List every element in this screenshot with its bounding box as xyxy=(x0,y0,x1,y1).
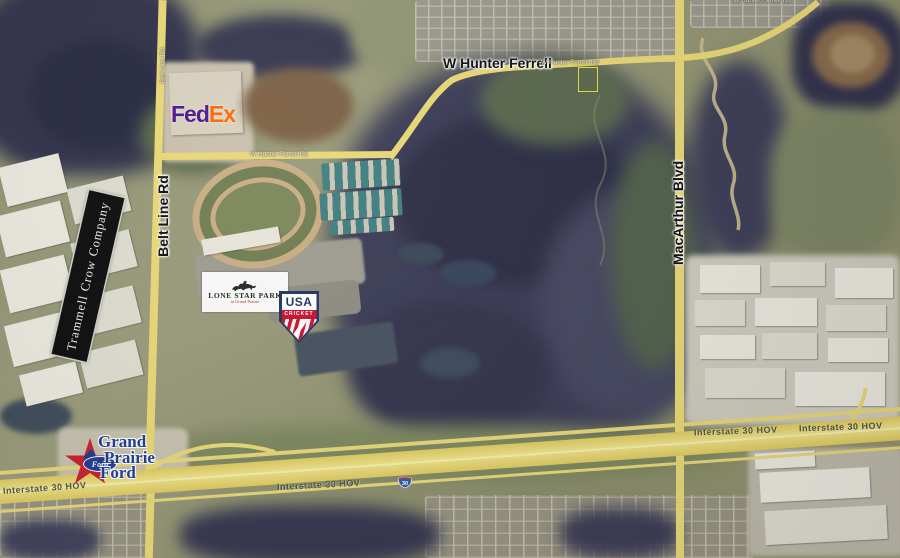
road-label-hunter-ferrell-small: W Hunter Ferrell Rd xyxy=(541,59,599,66)
hunter-ferrell-road-curve xyxy=(390,2,818,158)
road-label-hunter-ferrell-small: W Hunter Ferrell Rd xyxy=(733,0,791,4)
interstate-30-shield-icon: 30 xyxy=(397,474,413,489)
road-label-belt-line: Belt Line Rd xyxy=(155,171,171,261)
usa-cricket-usa-text: USA xyxy=(282,294,317,310)
usa-cricket-cricket-text: CRICKET xyxy=(282,310,317,319)
fedex-logo: FedEx xyxy=(171,101,235,128)
road-label-belt-line-small: Belt Line Rd xyxy=(160,43,167,89)
creek xyxy=(594,95,606,265)
ford-word-ford: Ford xyxy=(100,465,155,481)
lone-star-park-logo: LONE STAR PARK at Grand Prairie xyxy=(202,272,288,312)
fedex-logo-ex: Ex xyxy=(209,101,235,127)
road-label-hunter-ferrell-small: W Hunter Ferrell Rd xyxy=(250,151,308,158)
fedex-logo-fed: Fed xyxy=(171,101,209,127)
road-label-hunter-ferrell: W Hunter Ferrell xyxy=(443,55,552,71)
grand-prairie-ford-wordmark: Grand Prairie Ford xyxy=(98,434,155,481)
lone-star-park-title: LONE STAR PARK xyxy=(208,292,282,300)
river-meander xyxy=(701,38,738,230)
road-label-macarthur: MacArthur Blvd xyxy=(670,161,686,265)
lone-star-park-tagline: at Grand Prairie xyxy=(231,299,260,305)
highlighted-parcel-outline xyxy=(578,67,598,92)
satellite-map-canvas: W Hunter Ferrell W Hunter Ferrell Rd W H… xyxy=(0,0,900,558)
svg-text:30: 30 xyxy=(402,481,408,487)
horse-and-jockey-icon xyxy=(228,279,262,292)
